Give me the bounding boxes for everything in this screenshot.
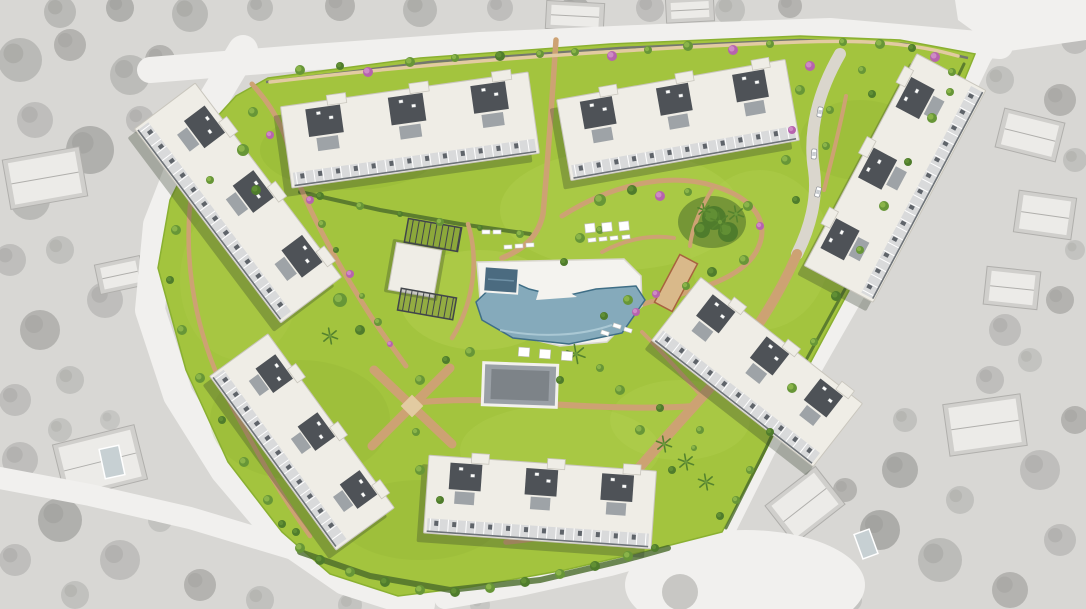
masterplan-svg bbox=[0, 0, 1086, 609]
small-pool bbox=[483, 266, 519, 293]
gym-pavilion bbox=[482, 363, 557, 408]
site-plan-render bbox=[0, 0, 1086, 609]
